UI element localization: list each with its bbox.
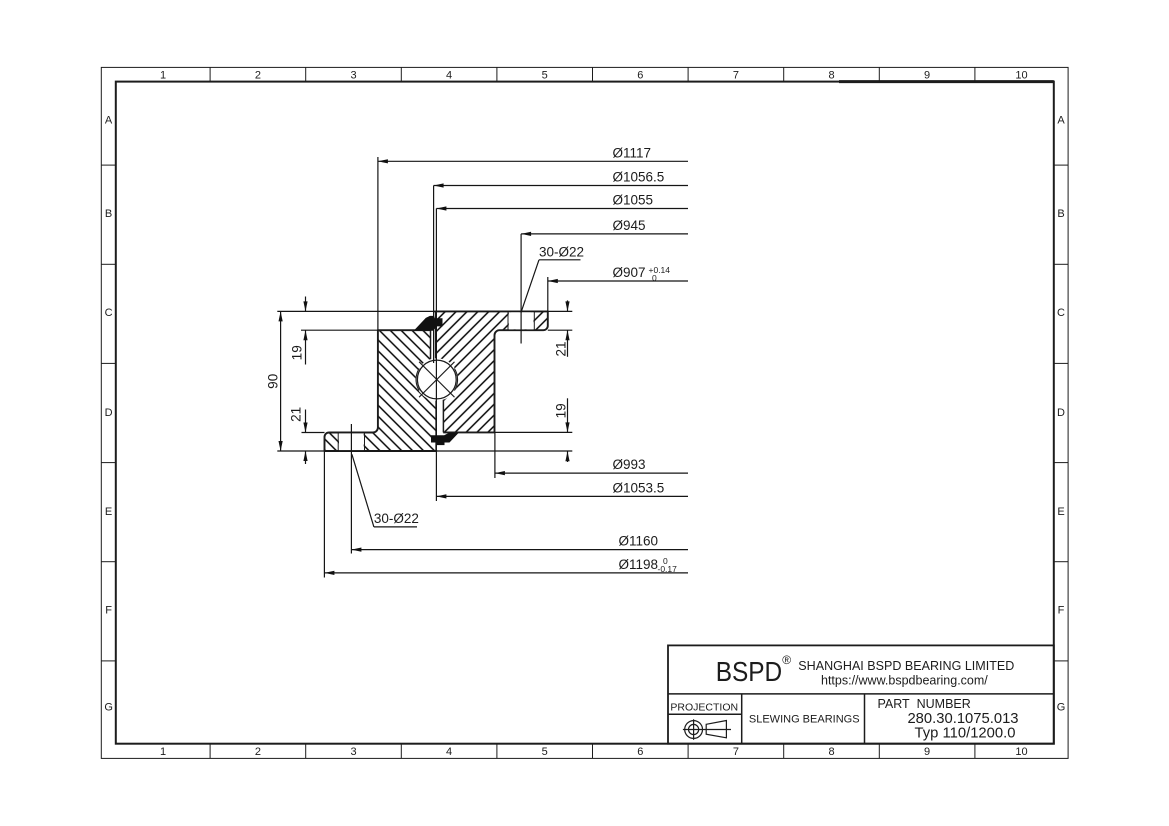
- svg-text:-0.17: -0.17: [658, 564, 678, 574]
- svg-text:90: 90: [266, 374, 281, 389]
- svg-text:9: 9: [924, 70, 930, 82]
- svg-text:B: B: [105, 208, 112, 220]
- svg-text:7: 7: [733, 746, 739, 758]
- svg-text:1: 1: [160, 746, 166, 758]
- svg-text:2: 2: [255, 70, 261, 82]
- svg-text:21: 21: [289, 407, 304, 422]
- svg-text:G: G: [104, 702, 113, 714]
- svg-text:7: 7: [733, 70, 739, 82]
- svg-text:8: 8: [828, 70, 834, 82]
- svg-text:B: B: [1057, 208, 1064, 220]
- svg-text:5: 5: [542, 746, 548, 758]
- svg-text:5: 5: [542, 70, 548, 82]
- svg-text:1: 1: [160, 70, 166, 82]
- svg-text:Ø1055: Ø1055: [613, 193, 654, 208]
- svg-text:4: 4: [446, 70, 452, 82]
- svg-text:Ø993: Ø993: [613, 457, 646, 472]
- svg-text:Ø1198: Ø1198: [619, 557, 659, 572]
- svg-text:19: 19: [290, 345, 305, 360]
- svg-text:G: G: [1057, 702, 1066, 714]
- svg-text:10: 10: [1015, 746, 1027, 758]
- svg-text:Typ 110/1200.0: Typ 110/1200.0: [915, 726, 1016, 742]
- svg-text:SHANGHAI BSPD BEARING LIMITED: SHANGHAI BSPD BEARING LIMITED: [798, 658, 1014, 673]
- svg-text:C: C: [1057, 307, 1065, 319]
- svg-text:6: 6: [637, 70, 643, 82]
- svg-text:6: 6: [637, 746, 643, 758]
- svg-text:8: 8: [828, 746, 834, 758]
- svg-text:3: 3: [350, 746, 356, 758]
- svg-text:F: F: [1058, 605, 1065, 617]
- svg-text:PART NUMBER: PART NUMBER: [878, 697, 971, 711]
- svg-text:Ø1117: Ø1117: [613, 145, 652, 160]
- svg-text:A: A: [105, 115, 113, 127]
- svg-text:SLEWING BEARINGS: SLEWING BEARINGS: [749, 714, 860, 726]
- svg-text:30-Ø22: 30-Ø22: [374, 511, 419, 526]
- svg-text:19: 19: [553, 403, 568, 418]
- svg-text:A: A: [1057, 115, 1065, 127]
- svg-text:30-Ø22: 30-Ø22: [539, 245, 584, 260]
- svg-text:BSPD: BSPD: [716, 656, 783, 687]
- svg-text:Ø1056.5: Ø1056.5: [613, 170, 665, 185]
- svg-text:3: 3: [350, 70, 356, 82]
- svg-text:C: C: [105, 307, 113, 319]
- svg-text:Ø1053.5: Ø1053.5: [613, 480, 665, 495]
- svg-text:Ø1160: Ø1160: [619, 534, 659, 549]
- svg-text:D: D: [1057, 407, 1065, 419]
- svg-text:2: 2: [255, 746, 261, 758]
- svg-text:4: 4: [446, 746, 452, 758]
- svg-text:https://www.bspdbearing.com/: https://www.bspdbearing.com/: [821, 674, 988, 688]
- svg-text:21: 21: [553, 341, 568, 356]
- svg-text:Ø907: Ø907: [613, 265, 646, 280]
- svg-text:10: 10: [1015, 70, 1027, 82]
- svg-text:D: D: [105, 407, 113, 419]
- svg-text:®: ®: [782, 653, 791, 667]
- svg-text:0: 0: [652, 273, 657, 283]
- svg-text:9: 9: [924, 746, 930, 758]
- svg-text:PROJECTION: PROJECTION: [670, 702, 738, 713]
- svg-text:Ø945: Ø945: [613, 218, 646, 233]
- svg-text:F: F: [105, 605, 112, 617]
- svg-text:E: E: [105, 506, 112, 518]
- svg-text:E: E: [1057, 506, 1064, 518]
